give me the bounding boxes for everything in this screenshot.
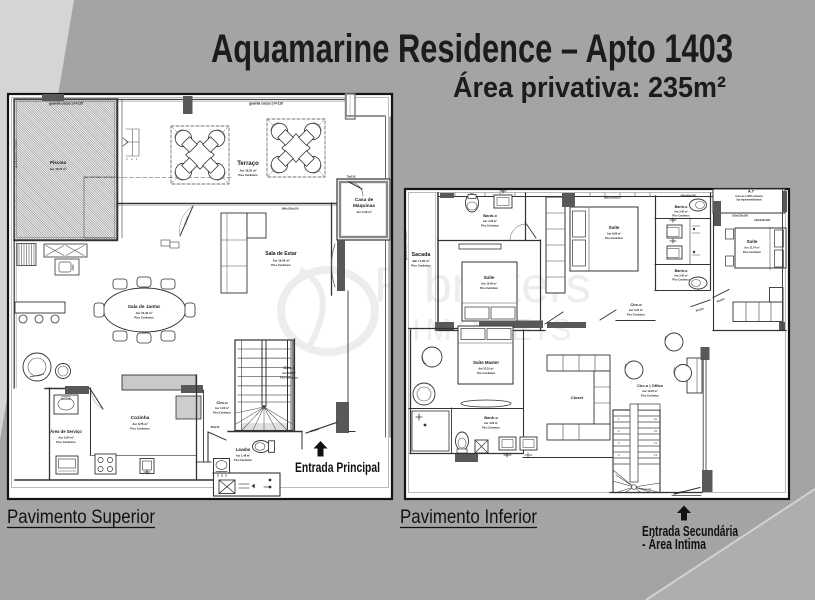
svg-text:Aur 22,10 m²: Aur 22,10 m²: [478, 367, 494, 371]
svg-text:Aur 43,70 m²: Aur 43,70 m²: [50, 167, 67, 171]
svg-text:Banh.o: Banh.o: [675, 269, 689, 273]
svg-text:Closet: Closet: [571, 395, 584, 400]
svg-text:Circ.o: Circ.o: [283, 365, 295, 370]
svg-text:Aur 1,66 m²: Aur 1,66 m²: [215, 406, 229, 410]
svg-text:Aur 24,40 m²: Aur 24,40 m²: [136, 311, 153, 315]
svg-text:Suíte: Suíte: [484, 275, 495, 280]
svg-text:190x120x100: 190x120x100: [603, 196, 621, 200]
svg-text:Piso Cerâmico: Piso Cerâmico: [480, 286, 498, 290]
svg-text:- Área Intima: - Área Intima: [642, 536, 707, 553]
svg-text:Circ.o: Circ.o: [630, 302, 642, 307]
svg-text:Piso Cerâmico: Piso Cerâmico: [134, 316, 154, 320]
svg-text:Aur 2,40 m²: Aur 2,40 m²: [674, 210, 688, 214]
svg-text:Banh.o: Banh.o: [483, 213, 497, 218]
svg-text:guarda corpo | h=110: guarda corpo | h=110: [49, 102, 83, 106]
svg-text:70x210: 70x210: [347, 175, 356, 179]
svg-text:com uso e APR exclusivo: com uso e APR exclusivo: [735, 195, 763, 198]
svg-text:Aur 18,55 m²: Aur 18,55 m²: [240, 169, 257, 173]
svg-text:guarda corpo | h=110m: guarda corpo | h=110m: [404, 231, 408, 260]
svg-text:Casa de: Casa de: [355, 197, 374, 203]
svg-text:Banh.o: Banh.o: [484, 415, 498, 420]
svg-text:Piso Cerâmico: Piso Cerâmico: [56, 440, 76, 444]
svg-text:Apr impermeabilizáveis: Apr impermeabilizáveis: [736, 199, 762, 202]
svg-text:Pavimento Superior: Pavimento Superior: [7, 506, 155, 528]
svg-text:Aur 8,66m²: Aur 8,66m²: [282, 371, 296, 375]
svg-text:Aquamarine Residence – Apto 14: Aquamarine Residence – Apto 1403: [211, 27, 733, 71]
svg-text:290x120x100: 290x120x100: [281, 207, 299, 211]
svg-text:Máquinas: Máquinas: [353, 203, 375, 209]
svg-text:Piso Cerâmico: Piso Cerâmico: [213, 411, 231, 415]
svg-text:Aur 2,46 m²: Aur 2,46 m²: [356, 210, 371, 214]
svg-text:Sala de Jantar: Sala de Jantar: [128, 304, 161, 310]
svg-text:guarda corpo | h=110: guarda corpo | h=110: [249, 102, 283, 106]
svg-text:Piso Cerâmico: Piso Cerâmico: [411, 264, 431, 268]
svg-text:Sala de Estar: Sala de Estar: [265, 251, 296, 257]
svg-text:Aur 4,62 m²: Aur 4,62 m²: [484, 421, 498, 425]
svg-text:100x120x100: 100x120x100: [732, 214, 748, 218]
svg-text:Aur 1,48 m²: Aur 1,48 m²: [236, 454, 250, 458]
svg-text:Piso Cerâmico: Piso Cerâmico: [482, 426, 500, 430]
svg-text:Suíte: Suíte: [609, 225, 620, 230]
svg-text:Cozinha: Cozinha: [131, 415, 150, 421]
svg-text:Bar f 3,95 m²: Bar f 3,95 m²: [413, 259, 430, 263]
svg-text:Piso Cerâmica: Piso Cerâmica: [477, 371, 495, 375]
svg-text:A.T: A.T: [748, 190, 755, 194]
svg-text:Piso Cerâmico: Piso Cerâmico: [234, 458, 252, 462]
svg-text:Piso Cerâmico: Piso Cerâmico: [743, 250, 761, 254]
svg-text:80x210: 80x210: [211, 425, 220, 429]
svg-text:Piso Cerâmico: Piso Cerâmico: [481, 224, 499, 228]
svg-text:Piscina: Piscina: [50, 160, 67, 165]
svg-text:Aur 11,74 m²: Aur 11,74 m²: [744, 246, 760, 250]
svg-text:Piso Cerâmico: Piso Cerâmico: [641, 394, 659, 398]
svg-text:Aur 19,06 m²: Aur 19,06 m²: [273, 259, 290, 263]
svg-text:Circ.o: Circ.o: [216, 400, 228, 405]
svg-text:Piso Cerâmico: Piso Cerâmico: [605, 236, 623, 240]
svg-text:Piso Cerâmico: Piso Cerâmico: [130, 427, 150, 431]
svg-text:Aur 2,84 m²: Aur 2,84 m²: [58, 436, 73, 440]
svg-text:Lavabo: Lavabo: [236, 447, 251, 452]
svg-text:Piso Cerâmico: Piso Cerâmico: [672, 215, 690, 218]
svg-text:Banh.o: Banh.o: [675, 205, 689, 209]
svg-text:130x120x100: 130x120x100: [754, 218, 770, 222]
svg-text:Suíte Master: Suíte Master: [473, 360, 499, 365]
svg-text:Piso Cerâmico: Piso Cerâmico: [271, 263, 291, 267]
svg-text:Sacada: Sacada: [412, 252, 432, 258]
svg-text:Área de Serviço: Área de Serviço: [50, 429, 82, 434]
svg-text:Aur 10,45 m²: Aur 10,45 m²: [481, 282, 497, 286]
svg-text:Terraço: Terraço: [237, 161, 259, 167]
svg-text:Suíte: Suíte: [747, 239, 758, 244]
svg-text:Entrada Principal: Entrada Principal: [295, 460, 380, 475]
svg-text:Piso Cerâmico: Piso Cerâmico: [238, 173, 258, 177]
svg-text:Pavimento Inferior: Pavimento Inferior: [400, 506, 537, 528]
svg-text:Aur 9,86 m²: Aur 9,86 m²: [607, 232, 621, 236]
svg-text:Aur 2,40 m²: Aur 2,40 m²: [674, 274, 688, 278]
svg-text:Aur 5,34 m²: Aur 5,34 m²: [629, 308, 643, 312]
svg-text:140x60x190: 140x60x190: [680, 194, 696, 198]
svg-text:Piso Cerâmico: Piso Cerâmico: [672, 279, 690, 282]
svg-text:Piso Cerâmico: Piso Cerâmico: [280, 376, 298, 380]
svg-text:Piso Cerâmico: Piso Cerâmico: [627, 313, 645, 317]
svg-text:Circ.o | Office: Circ.o | Office: [637, 383, 664, 388]
svg-text:Aur 4,06 m²: Aur 4,06 m²: [483, 219, 497, 223]
svg-text:Área privativa: 235m²: Área privativa: 235m²: [453, 70, 726, 104]
svg-text:Aur 8,76 m²: Aur 8,76 m²: [132, 422, 147, 426]
svg-text:Aur 10,20 m²: Aur 10,20 m²: [642, 389, 658, 393]
svg-text:guarda corpo | h=110m: guarda corpo | h=110m: [14, 139, 18, 168]
svg-text:4 em 40: 4 em 40: [642, 488, 652, 491]
